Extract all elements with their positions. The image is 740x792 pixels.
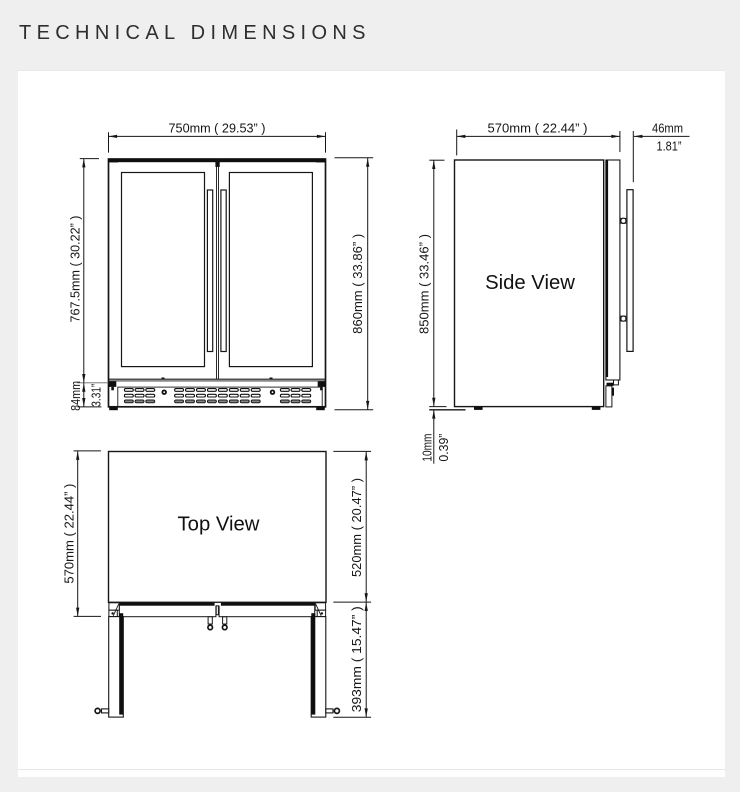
svg-text:520mm ( 20.47” ): 520mm ( 20.47” ) bbox=[350, 478, 364, 577]
svg-text:393mm ( 15.47” ): 393mm ( 15.47” ) bbox=[350, 606, 364, 712]
svg-text:570mm ( 22.44” ): 570mm ( 22.44” ) bbox=[488, 122, 588, 136]
svg-text:0.39”: 0.39” bbox=[437, 434, 451, 462]
svg-text:84mm: 84mm bbox=[69, 381, 83, 411]
svg-text:850mm ( 33.46” ): 850mm ( 33.46” ) bbox=[418, 234, 432, 334]
svg-text:10mm: 10mm bbox=[420, 434, 434, 462]
svg-text:Side View: Side View bbox=[485, 272, 575, 294]
svg-text:1.81”: 1.81” bbox=[657, 140, 682, 154]
svg-text:750mm ( 29.53” ): 750mm ( 29.53” ) bbox=[169, 122, 266, 136]
svg-text:Top View: Top View bbox=[178, 514, 260, 536]
svg-text:46mm: 46mm bbox=[652, 122, 683, 136]
svg-text:3.31”: 3.31” bbox=[89, 384, 103, 407]
svg-text:860mm ( 33.86” ): 860mm ( 33.86” ) bbox=[351, 234, 365, 334]
svg-text:767.5mm ( 30.22” ): 767.5mm ( 30.22” ) bbox=[69, 216, 83, 323]
svg-text:570mm ( 22.44” ): 570mm ( 22.44” ) bbox=[62, 484, 76, 584]
